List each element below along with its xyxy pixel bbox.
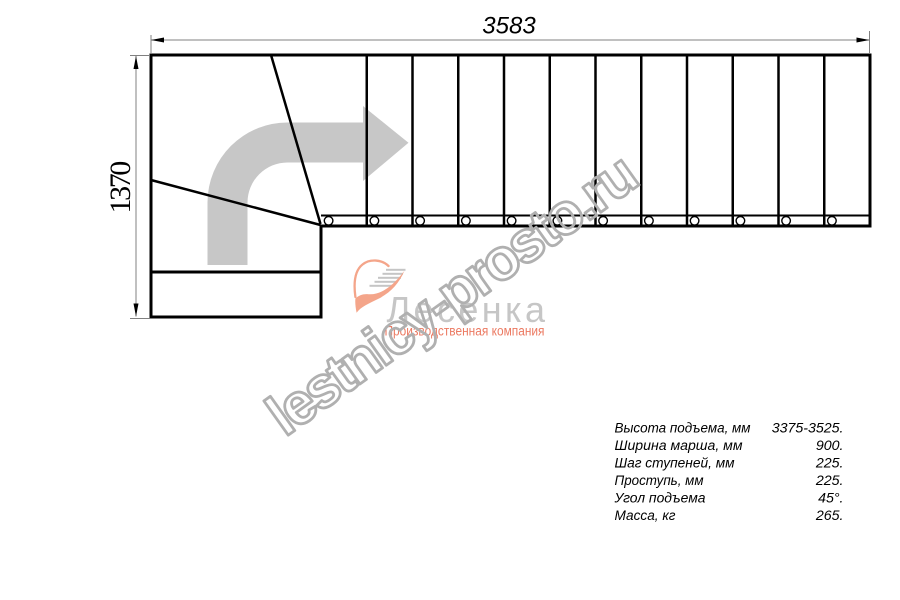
- svg-text:225.: 225.: [815, 456, 844, 472]
- svg-text:Шаг ступеней, мм: Шаг ступеней, мм: [615, 456, 735, 472]
- svg-text:265.: 265.: [815, 508, 844, 524]
- svg-text:Ширина марша, мм: Ширина марша, мм: [615, 438, 743, 454]
- svg-text:lestnicy-prosto.ru: lestnicy-prosto.ru: [255, 142, 648, 448]
- svg-text:Масса, кг: Масса, кг: [615, 508, 676, 524]
- svg-text:3375-3525.: 3375-3525.: [772, 420, 844, 436]
- svg-text:225.: 225.: [815, 473, 844, 489]
- svg-text:900.: 900.: [816, 438, 844, 454]
- svg-text:45°.: 45°.: [818, 490, 843, 506]
- svg-text:Угол подъема: Угол подъема: [614, 490, 706, 506]
- svg-text:Проступь, мм: Проступь, мм: [615, 473, 704, 489]
- svg-text:Высота подъема, мм: Высота подъема, мм: [615, 420, 751, 436]
- svg-text:1370: 1370: [104, 162, 137, 214]
- svg-text:3583: 3583: [482, 13, 536, 40]
